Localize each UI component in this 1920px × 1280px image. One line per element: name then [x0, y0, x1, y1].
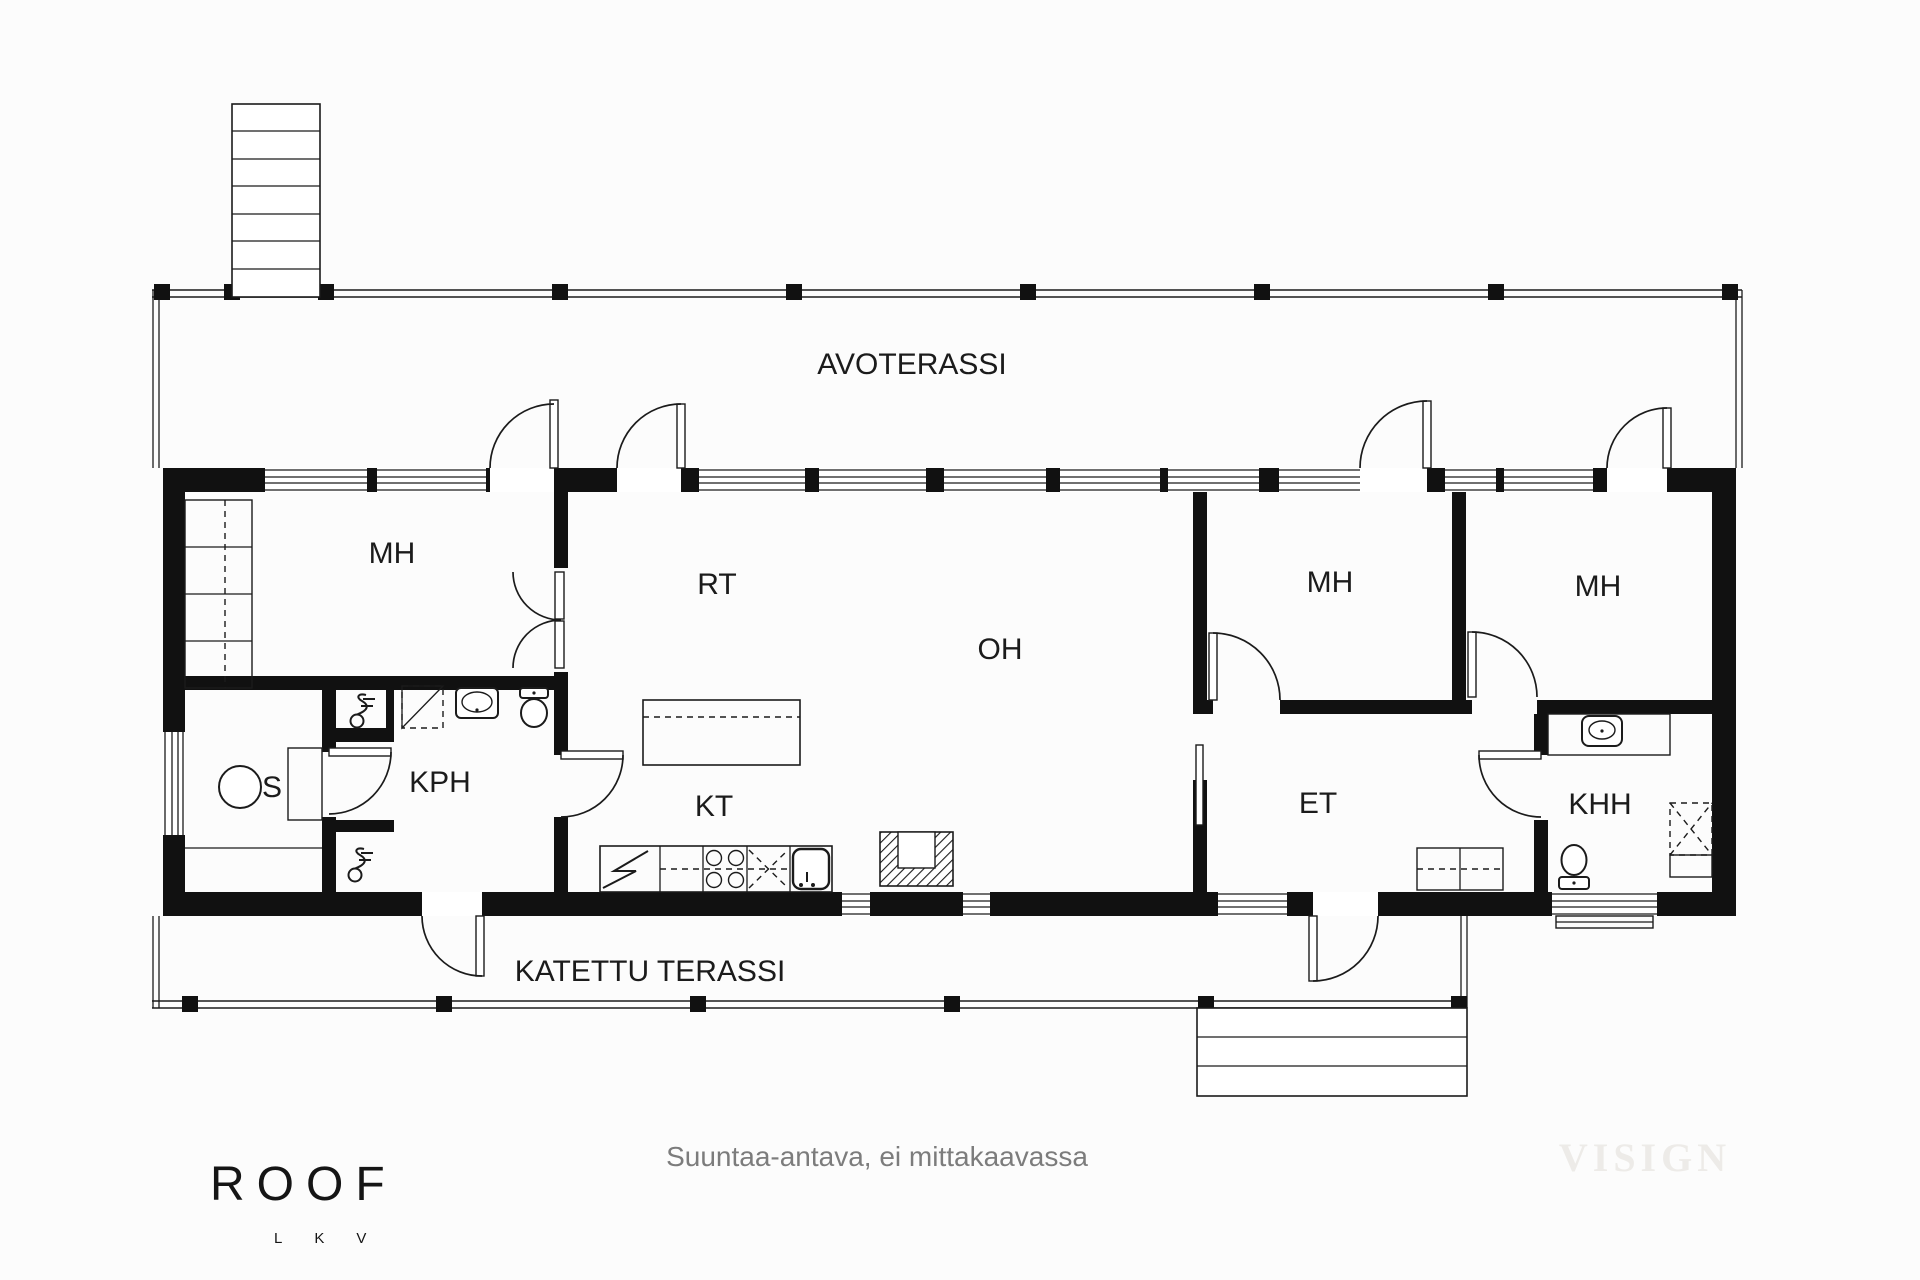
covered-terrace-label: KATETTU TERASSI: [515, 955, 786, 988]
window: [163, 732, 185, 835]
door-swing: [1309, 916, 1378, 981]
door-swing: [1479, 751, 1541, 817]
shower-area-icon: [402, 686, 443, 728]
disclaimer-text: Suuntaa-antava, ei mittakaavassa: [666, 1141, 1088, 1172]
open-terrace: AVOTERASSI: [152, 104, 1742, 468]
shower-mixer-icon: [349, 848, 374, 881]
room-label-mh-middle: MH: [1307, 566, 1354, 599]
room-label-oh: OH: [978, 633, 1023, 666]
watermark-text: VISIGN: [1559, 1135, 1731, 1180]
brand-logo: ROOF: [210, 1158, 397, 1211]
floor-plan-page: AVOTERASSI KATETTU TERASSI: [0, 0, 1920, 1280]
room-label-mh-left: MH: [369, 537, 416, 570]
entry-bench-icon: [1417, 848, 1503, 890]
kitchen-sink-icon: [793, 849, 829, 889]
double-door-swing: [513, 572, 564, 668]
kitchen-counter: [600, 846, 832, 892]
toilet-icon: [1559, 845, 1589, 889]
fridge-freezer-icon: [603, 851, 648, 888]
sauna-stove-icon: [219, 766, 261, 808]
floor-plan-drawing: AVOTERASSI KATETTU TERASSI: [0, 0, 1920, 1280]
footer: ROOF LKV Suuntaa-antava, ei mittakaavass…: [210, 1135, 1731, 1247]
kitchen-island-icon: [643, 700, 800, 765]
washbasin-icon: [456, 688, 498, 718]
brand-logo-letters: LKV: [274, 1230, 398, 1247]
door-swing: [1468, 632, 1537, 697]
fireplace-icon: [880, 832, 953, 886]
room-label-et: ET: [1299, 787, 1337, 820]
door-swing: [1607, 408, 1671, 468]
stairs-icon: [232, 104, 320, 297]
covered-terrace: KATETTU TERASSI: [152, 916, 1467, 1096]
door-swing: [329, 748, 391, 814]
shower-mixer-icon: [351, 694, 376, 727]
utility-counter: [1548, 714, 1670, 755]
door-swing: [490, 400, 558, 468]
terrace-steps-icon: [1197, 1008, 1467, 1096]
pocket-door-leaf: [1196, 745, 1203, 825]
toilet-icon: [520, 688, 548, 727]
room-label-kph: KPH: [409, 766, 471, 799]
door-swing: [1209, 633, 1280, 700]
room-label-sauna: S: [262, 771, 282, 804]
door-swing: [1360, 401, 1431, 468]
wardrobe-icon: [185, 500, 252, 688]
open-terrace-label: AVOTERASSI: [817, 348, 1007, 381]
sauna-bench-icon: [288, 748, 322, 820]
room-label-kt: KT: [695, 790, 733, 823]
room-label-mh-right: MH: [1575, 570, 1622, 603]
door-swing: [422, 916, 484, 976]
room-label-rt: RT: [697, 568, 736, 601]
door-swing: [617, 404, 685, 468]
room-label-khh: KHH: [1568, 788, 1631, 821]
washer-dryer-icon: [1670, 803, 1712, 877]
door-swing: [561, 751, 623, 817]
